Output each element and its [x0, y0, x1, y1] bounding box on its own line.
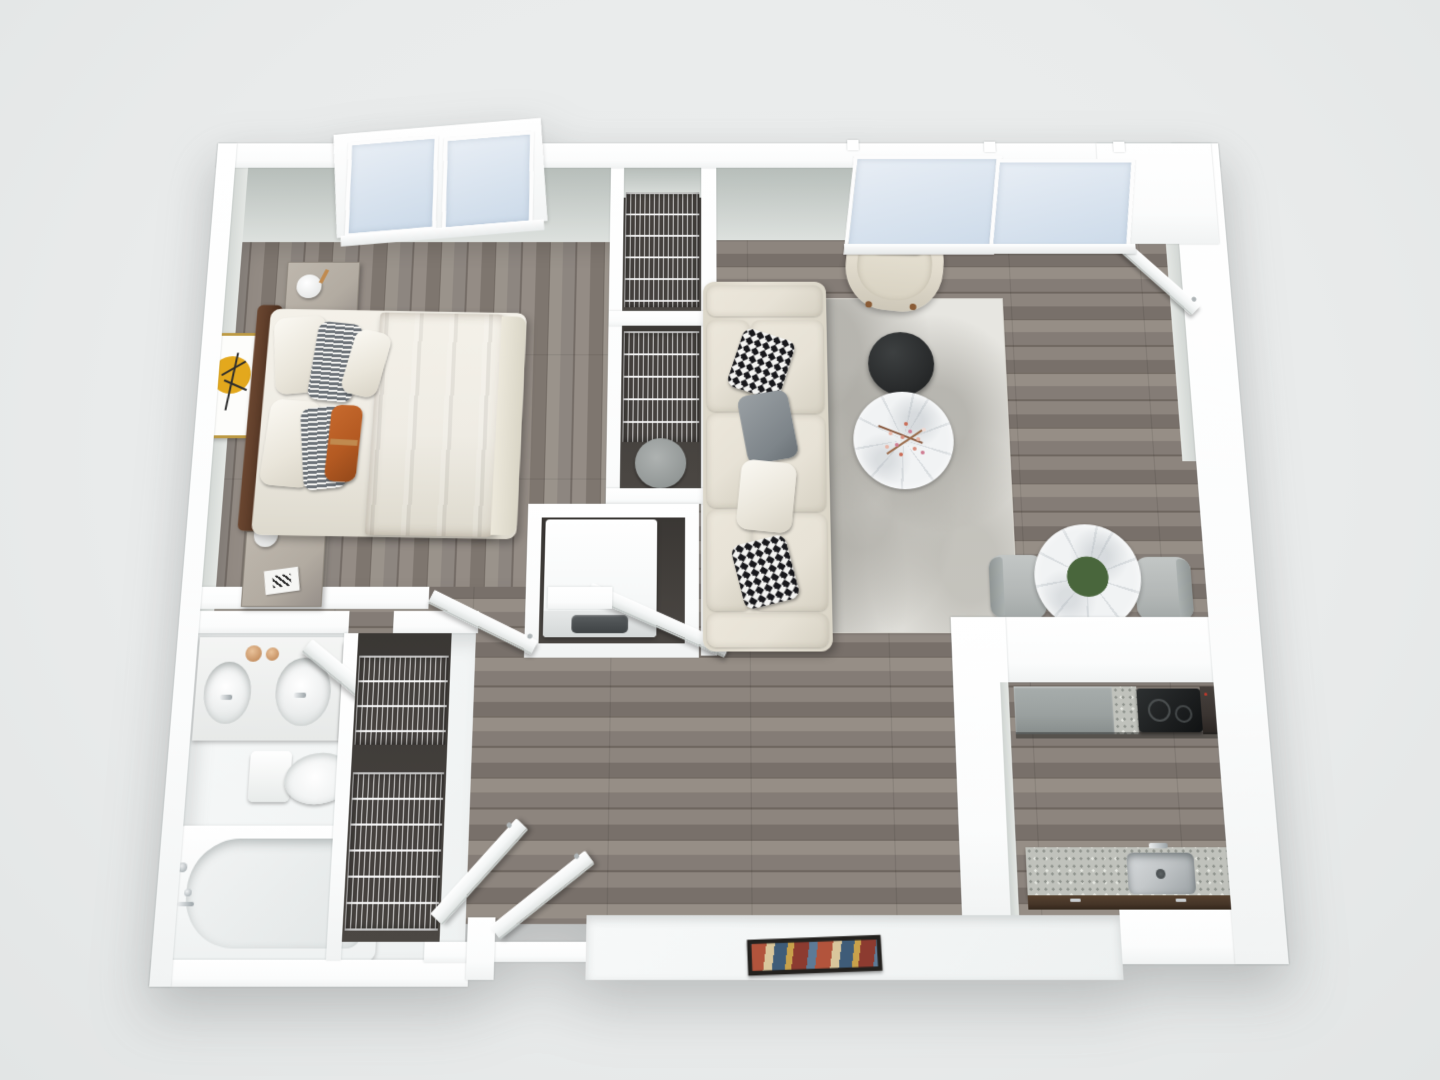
bathroom-north-wall	[196, 611, 349, 633]
hall-closet-wire-shelving-lower	[345, 772, 445, 930]
sink-drain	[1156, 869, 1166, 879]
kitchen-counter-toe-kick-shadow	[1016, 732, 1220, 738]
hall-closet-bottom-rail	[424, 942, 601, 962]
dining-rose-bouquet	[1064, 553, 1111, 597]
floor-plan-stage	[0, 0, 1440, 1080]
closet-upper-wire-shelving	[624, 192, 699, 307]
apartment-plan	[106, 130, 1304, 992]
bedroom-window-bay	[333, 118, 548, 252]
sofa-armrest-bottom	[707, 613, 829, 647]
living-window-sill	[844, 244, 1136, 254]
closet-divider-wall-2	[606, 488, 717, 504]
bathroom-south-wall	[149, 960, 468, 987]
kitchen-faucet	[1149, 843, 1168, 848]
wall-tab-5	[984, 142, 996, 152]
dining-chair-left-back	[988, 557, 1005, 617]
closet-middle-wire-shelving	[622, 331, 699, 442]
cooktop	[1136, 688, 1203, 732]
kitchen-sink	[1126, 853, 1196, 895]
bedroom-south-wall-stub	[548, 587, 613, 609]
kitchen-gray-cabinet-top	[1014, 686, 1115, 734]
bedroom-window-glass-left	[345, 135, 439, 238]
cooktop-burner-1	[1147, 699, 1171, 722]
wall-tab-6	[1113, 142, 1125, 152]
hall-closet-wire-shelving-upper	[354, 656, 448, 745]
kitchen-granite-strip	[1112, 686, 1140, 734]
sofa-armrest-top	[707, 285, 823, 316]
cabinet-handle-2	[1176, 899, 1187, 902]
kitchen-dark-wood-cabinet-fronts	[1028, 895, 1234, 909]
bed	[236, 303, 542, 545]
doormat-pattern	[751, 940, 878, 971]
doormat	[747, 935, 883, 976]
book-decor	[264, 567, 300, 595]
tub-spout	[177, 902, 194, 906]
faucet-left	[220, 695, 233, 700]
kitchen-counter-sink-run	[1025, 847, 1232, 897]
lumbar-pillow-brass-band	[330, 439, 358, 446]
bedroom-window-glass-right	[442, 131, 534, 232]
washer-door	[571, 615, 628, 633]
cooktop-burner-2	[1174, 705, 1193, 723]
sofa	[703, 282, 833, 652]
faucet-right	[294, 693, 307, 698]
dining-chair-right	[1134, 557, 1195, 621]
refrigerator-indicator-light	[1204, 693, 1207, 696]
closet-divider-wall-1	[609, 311, 717, 326]
kitchen-counter-top-run	[1014, 686, 1220, 734]
living-window-glass-left	[843, 156, 1002, 255]
cabinet-handle-1	[1070, 899, 1081, 902]
dried-flower-dots	[900, 435, 904, 439]
sofa-pillow-gray-2	[735, 459, 797, 534]
living-window-glass-right	[989, 159, 1136, 251]
wall-tab-4	[847, 140, 858, 150]
closet-small-round-table	[635, 438, 687, 488]
book-cover-art	[272, 574, 291, 588]
